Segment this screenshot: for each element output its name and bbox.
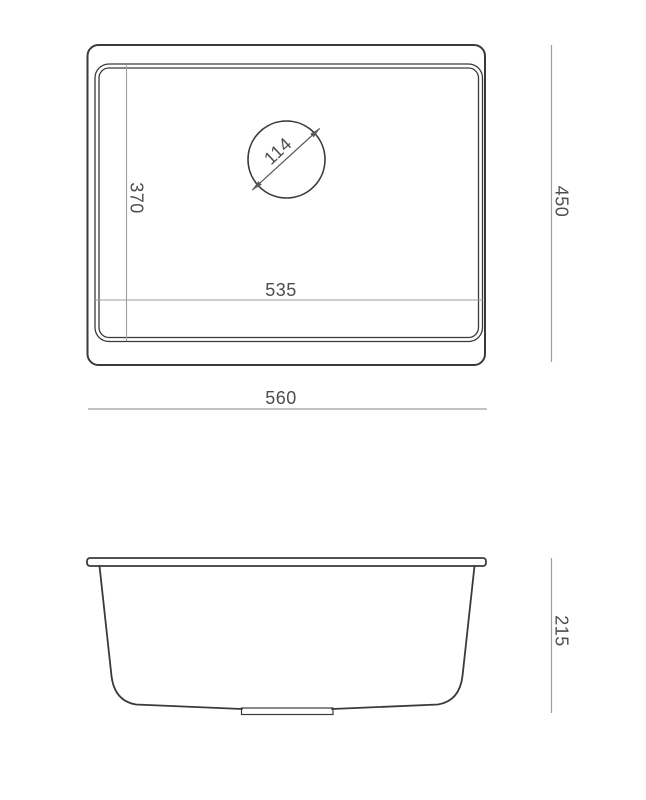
drawing-background bbox=[0, 0, 646, 800]
side-view-flange bbox=[87, 558, 486, 566]
dim-text-height: 215 bbox=[552, 615, 572, 647]
dim-text-inner-width: 370 bbox=[127, 182, 147, 214]
dim-text-inner-length: 535 bbox=[265, 280, 297, 300]
sink-technical-drawing: 114 370 535 450 560 215 bbox=[0, 0, 646, 800]
dim-text-overall-length: 560 bbox=[265, 388, 297, 408]
dim-text-overall-width: 450 bbox=[552, 186, 572, 218]
